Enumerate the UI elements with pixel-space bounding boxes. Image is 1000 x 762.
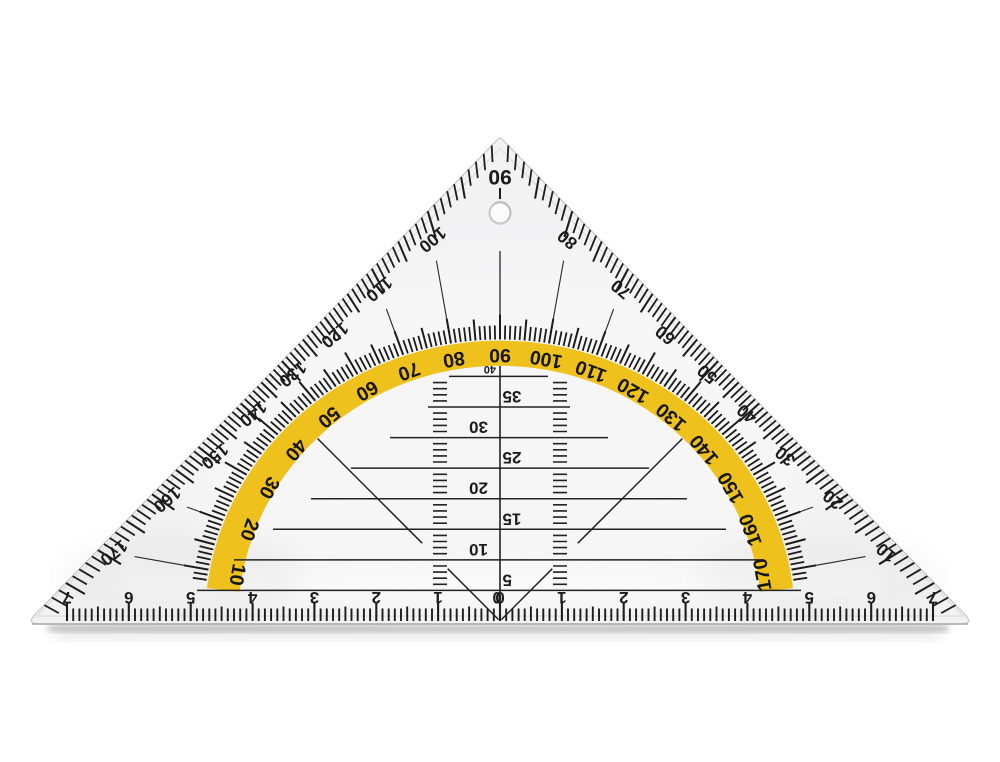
svg-text:0: 0	[492, 588, 501, 606]
svg-text:30: 30	[469, 418, 488, 437]
svg-text:20: 20	[469, 479, 488, 498]
svg-text:80: 80	[441, 346, 466, 371]
svg-text:35: 35	[503, 387, 522, 406]
svg-text:5: 5	[186, 588, 195, 607]
svg-text:15: 15	[503, 509, 522, 528]
svg-text:5: 5	[805, 588, 814, 607]
svg-text:40: 40	[484, 363, 496, 375]
svg-text:6: 6	[866, 588, 875, 607]
svg-text:6: 6	[124, 588, 133, 607]
svg-text:5: 5	[503, 570, 512, 589]
svg-text:10: 10	[224, 562, 249, 587]
svg-text:10: 10	[469, 540, 488, 559]
svg-text:25: 25	[503, 448, 522, 467]
svg-text:90: 90	[488, 165, 511, 188]
svg-text:90: 90	[489, 344, 511, 366]
